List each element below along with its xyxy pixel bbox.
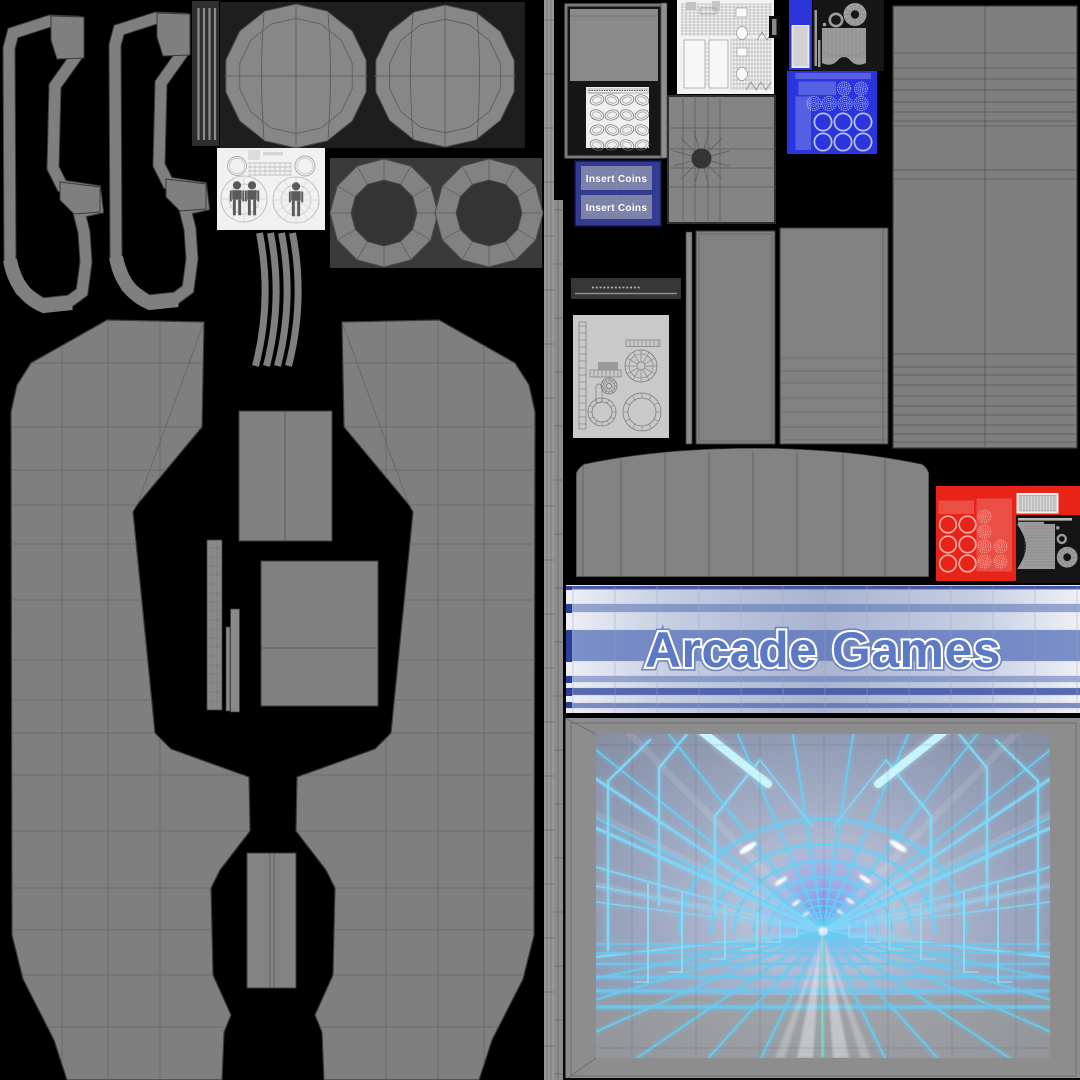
- svg-text:Arcade Games: Arcade Games: [645, 622, 1001, 678]
- svg-text:Insert Coins: Insert Coins: [586, 203, 648, 214]
- svg-text:Insert Coins: Insert Coins: [586, 174, 648, 185]
